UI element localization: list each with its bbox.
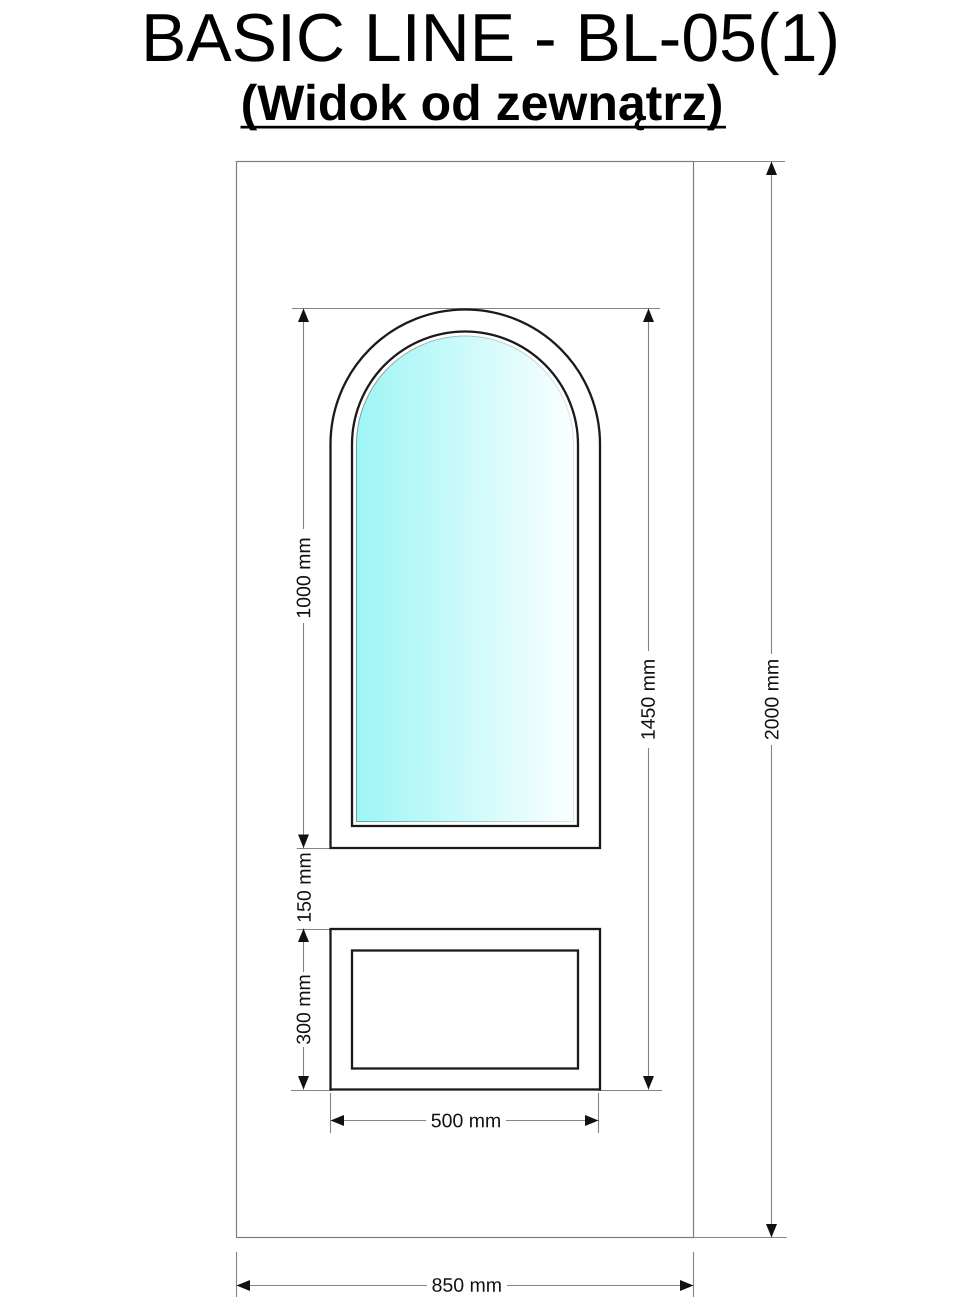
svg-text:(Widok od zewnątrz): (Widok od zewnątrz): [241, 75, 724, 131]
svg-text:BASIC LINE - BL-05(1): BASIC LINE - BL-05(1): [141, 0, 840, 76]
